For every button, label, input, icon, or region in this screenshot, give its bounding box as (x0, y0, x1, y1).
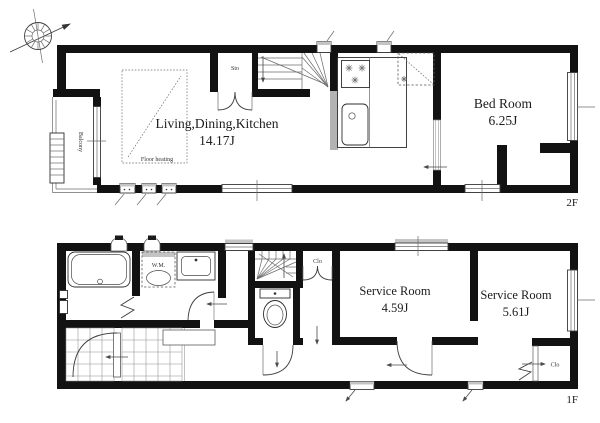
closet-folding-door (519, 362, 532, 380)
sto-closet: Sto (218, 66, 252, 110)
entrance-step (163, 330, 215, 345)
bedroom-area: 6.25J (489, 113, 518, 128)
floor-2f: Balcony (50, 31, 595, 209)
staircase-2f (258, 53, 328, 89)
kitchen-sink (342, 104, 368, 145)
kitchen (338, 53, 435, 148)
service-b-area: 5.61J (503, 305, 530, 319)
ldk-area: 14.17J (199, 133, 235, 148)
service-a-area: 4.59J (382, 301, 409, 315)
toilet-room (260, 289, 293, 375)
corner-closet: Clo (519, 346, 559, 381)
toilet-door (263, 345, 293, 375)
front-door-swing (73, 333, 117, 377)
hall-closet-label: Clo (313, 259, 322, 265)
service-b-window (568, 270, 578, 331)
vent-windows-south (115, 184, 176, 206)
washroom: W.M. (142, 252, 227, 320)
bathtub (68, 252, 130, 287)
floor-2f-label: 2F (566, 197, 578, 209)
service-b-label: Service Room (480, 288, 551, 302)
floor-1f-label: 1F (566, 394, 578, 406)
front-door-leaf (114, 333, 121, 377)
floor-heating-label: Floor heating (141, 157, 173, 163)
bedroom-label: Bed Room (474, 96, 533, 111)
washroom-door (188, 292, 214, 320)
ldk-label: Living,Dining,Kitchen (156, 116, 279, 131)
stove (342, 61, 370, 88)
bedroom-sliding-door (424, 120, 447, 170)
wm-label: W.M. (152, 263, 166, 269)
corner-closet-label: Clo (551, 363, 560, 369)
balcony-label: Balcony (77, 132, 83, 152)
floor-plan-drawing: Balcony (0, 0, 600, 423)
service-a-label: Service Room (359, 284, 430, 298)
staircase-1f (255, 251, 296, 279)
floor-1f: W.M. (57, 236, 595, 407)
bedroom-window (568, 73, 578, 141)
service-a-door (387, 341, 432, 375)
hall-closet: Clo (303, 259, 332, 344)
bathroom (60, 252, 135, 318)
sto-label: Sto (231, 66, 239, 72)
floor-plan-page: Balcony (0, 0, 600, 423)
washing-machine-space (142, 252, 175, 287)
bath-folding-door (121, 297, 134, 318)
entrance (66, 328, 215, 381)
